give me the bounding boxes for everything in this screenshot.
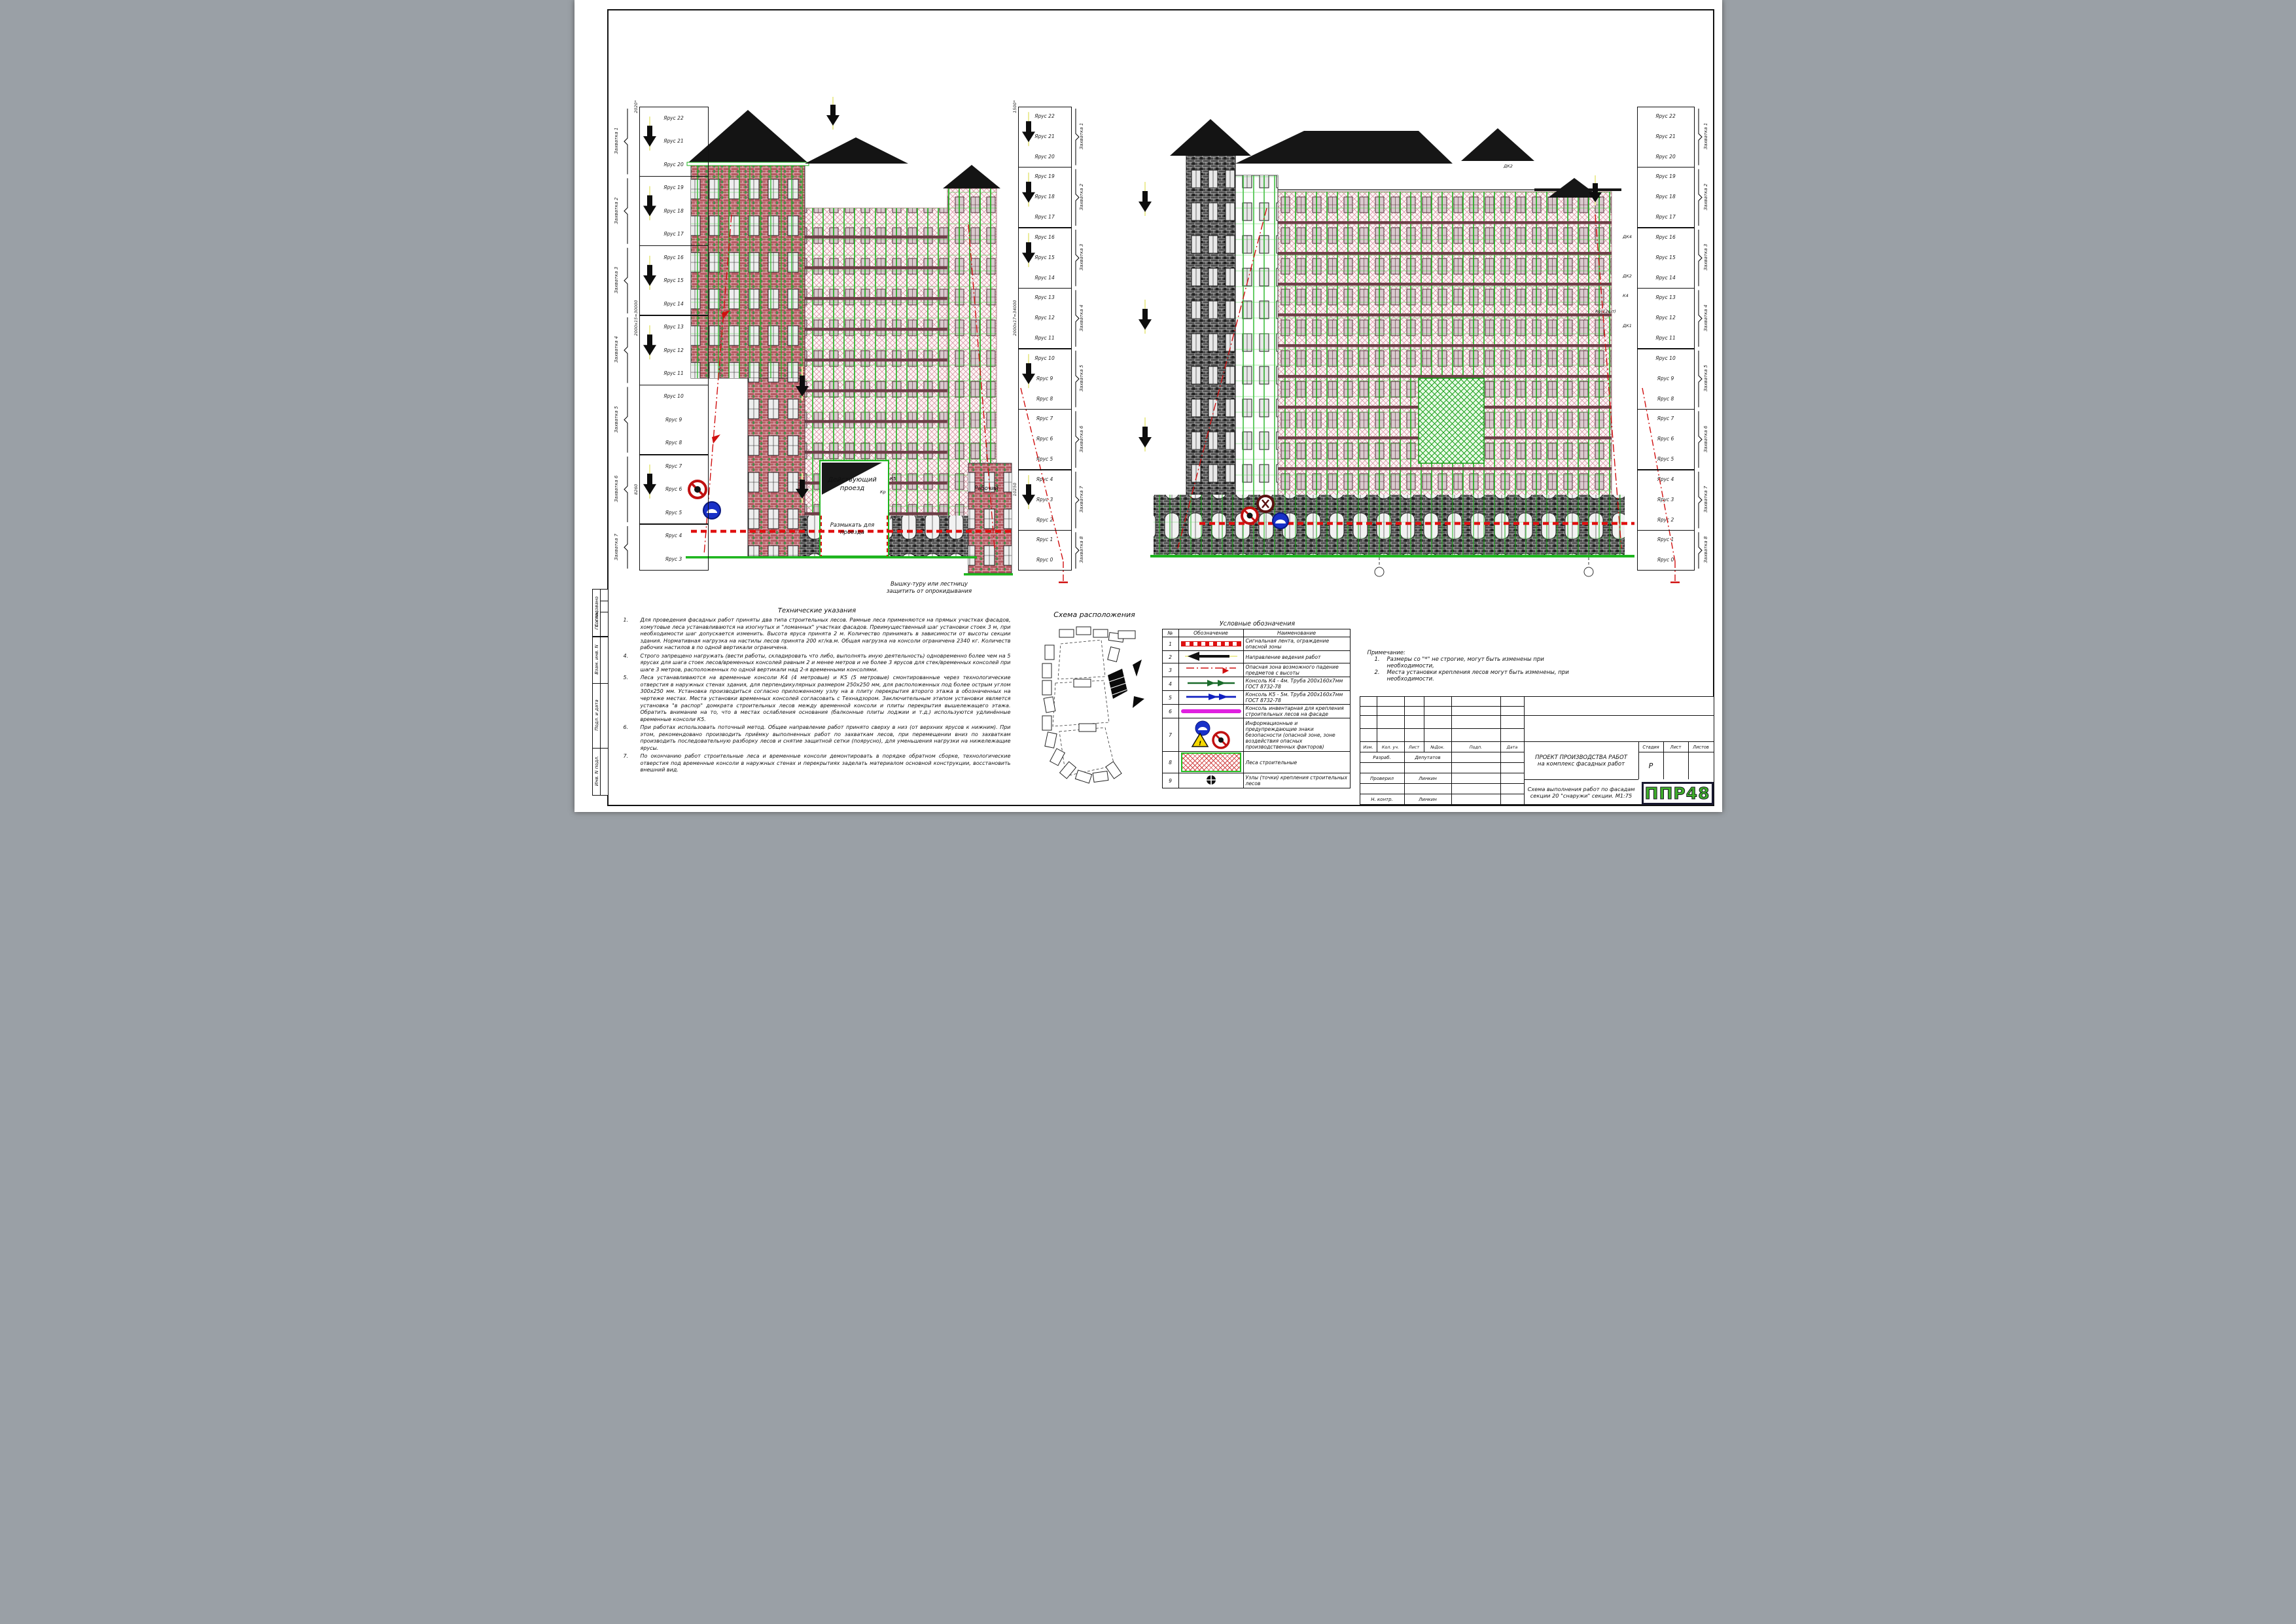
stamp-empty-cell [1500, 697, 1524, 706]
sidebar-box-approved: Согласовано Гл. спец. [592, 589, 609, 637]
technical-notes-title: Технические указания [624, 607, 1011, 614]
signature-cell [1451, 752, 1500, 762]
zahvatka-label: Захватка 2 [1079, 174, 1084, 220]
signature-cell [1451, 783, 1500, 794]
technical-note-item: 1.Для проведения фасадных работ приняты … [624, 617, 1011, 652]
stamp-empty-cell [1404, 715, 1424, 728]
scaffold-icon [1178, 752, 1243, 773]
legend-row: 4Консоль К4 - 4м. Труба 200х160х7мм ГОСТ… [1162, 677, 1350, 691]
technical-notes-list: 1.Для проведения фасадных работ приняты … [624, 617, 1011, 774]
legend-row: 7!Информационные и предупреждающие знаки… [1162, 718, 1350, 752]
key-plan-title: Схема расположения [1033, 610, 1157, 619]
signature-cell [1451, 773, 1500, 783]
facade2-main-roof [1235, 131, 1453, 164]
zahvatka-label: Захватка 7 [614, 524, 619, 570]
rev-header-cell: Подп. [1451, 741, 1500, 752]
sidebar-box-vzam: Взам. инв. N [592, 637, 609, 684]
legend-header: № [1162, 629, 1178, 637]
direction-arrow-icon [1178, 651, 1243, 663]
stamp-empty-cell [1500, 728, 1524, 741]
signature-cell [1451, 794, 1500, 804]
list-header: Лист [1663, 741, 1688, 752]
legend-table: №ОбозначениеНаименование1Сигнальная лент… [1162, 629, 1351, 788]
zahvatka-label: Захватка 8 [1079, 527, 1084, 573]
stamp-empty-cell [1451, 697, 1500, 706]
stamp-empty-cell [1451, 715, 1500, 728]
zahvatka-label: Захватка 3 [1079, 234, 1084, 280]
sidebar-box-podl: Подл. и дата [592, 683, 609, 749]
inventory-console-icon [1178, 705, 1243, 718]
zahvatka-label: Захватка 4 [614, 327, 619, 372]
danger-line-icon [1178, 663, 1243, 677]
tier-ladder-left: Ярус 22Ярус 21Ярус 20Ярус 19Ярус 18Ярус … [610, 107, 709, 571]
technical-note-item: 7.По окончанию работ строительные леса и… [624, 753, 1011, 774]
technical-note-item: 5.Леса устанавливаются на временные конс… [624, 675, 1011, 723]
zahvatka-label: Захватка 6 [1079, 416, 1084, 462]
dimension-label: 2000х15=30000 [633, 290, 639, 346]
drawing-sheet: Согласовано Гл. спец. Взам. инв. N Подл.… [574, 0, 1722, 812]
stamp-empty-cell [1404, 706, 1424, 715]
stamp-empty-cell [1424, 728, 1451, 741]
remarks-title: Примечание: [1368, 650, 1590, 656]
stamp-empty-cell [1424, 706, 1451, 715]
stamp-empty-cell [1360, 715, 1377, 728]
dimension-label: 1500* [1012, 79, 1017, 135]
person-role-cell [1360, 783, 1404, 794]
facade2-axis-markers [1375, 557, 1593, 576]
zahvatka-label: Захватка 3 [614, 257, 619, 303]
rev-header-cell: Кол. уч. [1377, 741, 1404, 752]
technical-note-item: 4.Строго запрещено нагружать (вести рабо… [624, 653, 1011, 674]
person-name-cell [1404, 762, 1451, 773]
facade1-tower-roof [943, 165, 1000, 188]
rev-header-cell: Дата [1500, 741, 1524, 752]
dimension-label: 2000х17=34000 [1012, 290, 1017, 346]
zahvatka-label: Захватка 5 [1703, 355, 1708, 401]
facade2-tag-dk1: ДК1 [1622, 323, 1632, 328]
console-k4-icon [1178, 677, 1243, 691]
stage-value: Р [1638, 752, 1663, 779]
legend-row: 9Узлы (точки) крепления строительных лес… [1162, 773, 1350, 788]
tier-ladder-middle: Ярус 22Ярус 21Ярус 20Ярус 19Ярус 18Ярус … [1008, 107, 1086, 571]
technical-note-item: 6.При работах использовать поточный мето… [624, 724, 1011, 752]
svg-text:!: ! [1199, 741, 1201, 747]
zahvatka-label: Захватка 5 [614, 397, 619, 442]
person-role-cell: Н. контр. [1360, 794, 1404, 804]
rev-header-cell: Лист [1404, 741, 1424, 752]
stamp-empty-cell [1424, 697, 1451, 706]
facade-left-elevation: К5 Кр К5 [686, 97, 1013, 581]
sheet-title-cell: Схема выполнения работ по фасадам секции… [1524, 779, 1638, 804]
dimension-label: 2020* [633, 79, 639, 135]
tower-protect-note: Вышку-туру или лестницузащитить от опрок… [872, 581, 987, 595]
facade2-balcony-scaffold [1419, 378, 1484, 463]
facade2-tag-dk2a: ДК2 [1503, 164, 1513, 169]
stage-header: Стадия [1638, 741, 1663, 752]
key-plan: Схема расположения [1033, 610, 1157, 800]
facade1-tag-k5b: К5 [890, 516, 896, 521]
zahvatka-label: Захватка 2 [1703, 174, 1708, 220]
facade2-ground-line [1150, 555, 1634, 557]
sidebar-item-inv: Инв. N подл. [594, 745, 599, 797]
stamp-empty-cell [1377, 728, 1404, 741]
facade1-mid-roof [805, 137, 908, 164]
stamp-empty-cell [1404, 728, 1424, 741]
legend-row: 2Направление ведения работ [1162, 651, 1350, 663]
zahvatka-label: Захватка 7 [1703, 476, 1708, 522]
facade2-tag-kr12: Кр(12шт) [1595, 309, 1616, 314]
legend-header: Наименование [1243, 629, 1350, 637]
stamp-empty-cell [1377, 697, 1404, 706]
legend-row: 1Сигнальная лента, ограждение опасной зо… [1162, 637, 1350, 651]
open-for-passage-label: Размыкать дляпроезда [818, 522, 887, 536]
remarks-list: 1.Размеры со "*" не строгие, могут быть … [1368, 656, 1590, 682]
doc-title-line1: ПРОЕКТ ПРОИЗВОДСТВА РАБОТ [1535, 754, 1627, 761]
sheet-title-line1: Схема выполнения работ по фасадам [1528, 786, 1635, 792]
facade2-tower-gable-roof [1170, 119, 1251, 156]
legend-row: 3Опасная зона возможного падение предмет… [1162, 663, 1350, 677]
key-plan-drawing [1036, 619, 1154, 797]
date-cell [1500, 762, 1524, 773]
sidebar-box-inv: Инв. N подл. [592, 748, 609, 796]
remark-item: 1.Размеры со "*" не строгие, могут быть … [1368, 656, 1590, 669]
stamp-empty-cell [1377, 706, 1404, 715]
title-block: Изм.Кол. уч.Лист№Док.Подп.ДатаРазраб.Деп… [1360, 696, 1714, 805]
facade1-tag-k5: К5 [890, 476, 896, 482]
signature-cell [1451, 762, 1500, 773]
stamp-reserve-cell [1524, 697, 1714, 715]
person-role-cell: Разраб. [1360, 752, 1404, 762]
person-role-cell [1360, 762, 1404, 773]
stamp-empty-cell [1500, 715, 1524, 728]
node-icon [1178, 773, 1243, 788]
stamp-empty-cell [1451, 706, 1500, 715]
zahvatka-label: Захватка 1 [1703, 113, 1708, 159]
stamp-empty-cell [1360, 697, 1377, 706]
stamp-empty-cell [1360, 706, 1377, 715]
stamp-empty-cell [1500, 706, 1524, 715]
listov-value [1688, 752, 1714, 779]
remark-item: 2.Места установки крепления лесов могут … [1368, 669, 1590, 682]
listov-header: Листов [1688, 741, 1714, 752]
rev-header-cell: №Док. [1424, 741, 1451, 752]
signal-tape-icon [1178, 637, 1243, 651]
zahvatka-label: Захватка 6 [614, 466, 619, 512]
date-cell [1500, 783, 1524, 794]
zahvatka-label: Захватка 6 [1703, 416, 1708, 462]
person-name-cell: Линкин [1404, 794, 1451, 804]
legend-row: 6Консоль инвентарная для крепления строи… [1162, 705, 1350, 718]
dimension-label: 8260 [633, 461, 639, 518]
person-role-cell: Проверил [1360, 773, 1404, 783]
sidebar-item-podl: Подл. и дата [594, 689, 599, 741]
date-cell [1500, 773, 1524, 783]
passage-label: Действующийпроезд [817, 476, 889, 493]
technical-notes: Технические указания 1.Для проведения фа… [624, 607, 1011, 775]
sidebar-item-vzam: Взам. инв. N [594, 633, 599, 686]
person-name-cell [1404, 783, 1451, 794]
zahvatka-label: Захватка 1 [1079, 113, 1084, 159]
facade2-tag-dk2b: ДК2 [1622, 274, 1632, 279]
person-name-cell: Линкин [1404, 773, 1451, 783]
safety-signs-icon: ! [1178, 718, 1243, 752]
zahvatka-label: Захватка 5 [1079, 355, 1084, 401]
stamp-empty-cell [1404, 697, 1424, 706]
rev-header-cell: Изм. [1360, 741, 1377, 752]
zahvatka-label: Захватка 3 [1703, 234, 1708, 280]
remarks: Примечание: 1.Размеры со "*" не строгие,… [1368, 650, 1590, 682]
legend: Условные обозначения №ОбозначениеНаимено… [1162, 620, 1353, 788]
tier-ladder-right: Ярус 22Ярус 21Ярус 20Ярус 19Ярус 18Ярус … [1637, 107, 1713, 571]
sheet-title-line2: секции 20 "снаружи" секции. М1:75 [1530, 792, 1632, 799]
zahvatka-label: Захватка 4 [1079, 295, 1084, 341]
date-cell [1500, 794, 1524, 804]
console-k5-icon [1178, 691, 1243, 705]
list-value [1663, 752, 1688, 779]
zahvatka-label: Захватка 1 [614, 118, 619, 164]
zahvatka-label: Захватка 8 [1703, 527, 1708, 573]
legend-title: Условные обозначения [1162, 620, 1353, 627]
zahvatka-label: Захватка 2 [614, 188, 619, 234]
legend-row: 5Консоль К5 - 5м. Труба 200х160х7мм ГОСТ… [1162, 691, 1350, 705]
date-cell [1500, 752, 1524, 762]
facade-right-elevation: ДК2 ДК4 ДК2 К4 ДК1 Кр(12шт) [1137, 97, 1641, 581]
sidebar-item-gl-spec: Гл. спец. [594, 601, 599, 638]
dimension-label: 10250 [1012, 461, 1017, 518]
stamp-reserve-cell [1524, 715, 1714, 741]
facade1-ground-line [686, 556, 977, 559]
zahvatka-label: Захватка 4 [1703, 295, 1708, 341]
worker-label: Рабочий [967, 485, 1006, 493]
legend-row: 8Леса строительные [1162, 752, 1350, 773]
stamp-empty-cell [1377, 715, 1404, 728]
legend-header: Обозначение [1178, 629, 1243, 637]
doc-title-cell: ПРОЕКТ ПРОИЗВОДСТВА РАБОТ на комплекс фа… [1524, 741, 1638, 779]
stamp-empty-cell [1451, 728, 1500, 741]
zahvatka-label: Захватка 7 [1079, 476, 1084, 522]
ppr48-logo: ППР48 [1642, 782, 1714, 805]
stamp-empty-cell [1424, 715, 1451, 728]
facade2-tag-k4: К4 [1623, 293, 1629, 298]
facade2-tag-dk4: ДК4 [1622, 234, 1632, 239]
stamp-empty-cell [1360, 728, 1377, 741]
facade2-pyramid-roof [1461, 128, 1534, 161]
doc-title-line2: на комплекс фасадных работ [1538, 761, 1625, 768]
person-name-cell: Депутатов [1404, 752, 1451, 762]
